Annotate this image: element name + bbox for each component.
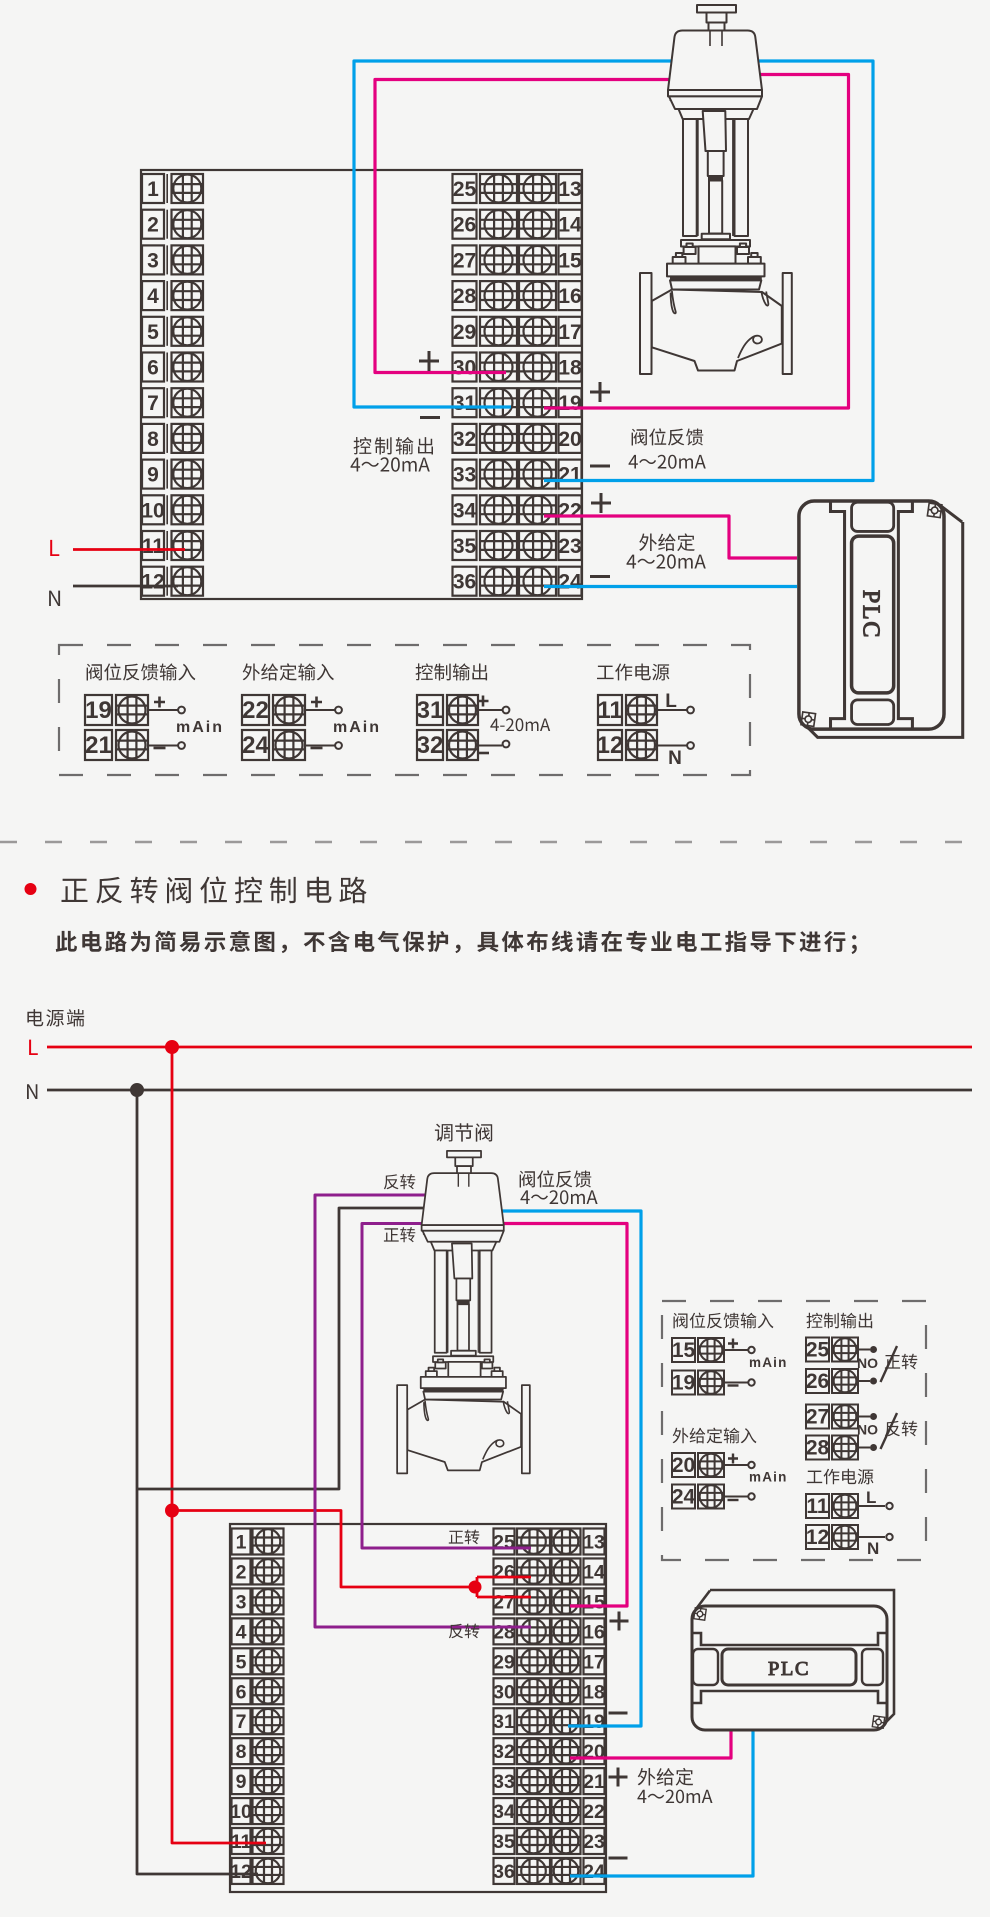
- svg-text:9: 9: [236, 1771, 247, 1793]
- svg-text:L: L: [866, 1488, 876, 1507]
- svg-text:32: 32: [417, 732, 444, 759]
- svg-text:21: 21: [583, 1771, 605, 1793]
- svg-text:mAin: mAin: [749, 1470, 788, 1485]
- svg-text:10: 10: [230, 1801, 252, 1823]
- svg-text:28: 28: [806, 1437, 830, 1460]
- svg-text:35: 35: [453, 535, 477, 558]
- svg-text:35: 35: [493, 1831, 515, 1853]
- svg-text:22: 22: [242, 697, 269, 724]
- svg-text:1: 1: [147, 178, 159, 201]
- svg-text:27: 27: [453, 249, 476, 272]
- svg-text:8: 8: [236, 1741, 247, 1763]
- svg-text:21: 21: [558, 464, 582, 487]
- svg-text:33: 33: [493, 1771, 515, 1793]
- svg-text:15: 15: [558, 249, 582, 272]
- svg-text:N: N: [668, 748, 682, 769]
- svg-text:19: 19: [672, 1372, 695, 1395]
- svg-text:36: 36: [453, 571, 476, 594]
- svg-text:18: 18: [558, 357, 582, 380]
- svg-text:14: 14: [558, 214, 582, 237]
- svg-text:24: 24: [672, 1486, 696, 1509]
- svg-text:13: 13: [558, 178, 581, 201]
- svg-text:26: 26: [453, 214, 476, 237]
- svg-text:29: 29: [493, 1651, 515, 1673]
- svg-text:23: 23: [583, 1831, 605, 1853]
- svg-text:2: 2: [236, 1561, 247, 1583]
- svg-text:11: 11: [806, 1495, 829, 1518]
- svg-text:mAin: mAin: [333, 719, 381, 736]
- svg-text:19: 19: [583, 1711, 605, 1733]
- svg-text:L: L: [665, 691, 677, 712]
- svg-text:12: 12: [230, 1861, 252, 1883]
- svg-text:24: 24: [558, 571, 582, 594]
- svg-text:NO: NO: [857, 1355, 878, 1371]
- svg-text:4: 4: [236, 1621, 247, 1643]
- svg-text:5: 5: [236, 1651, 247, 1673]
- svg-text:16: 16: [583, 1621, 605, 1643]
- svg-text:15: 15: [672, 1339, 696, 1362]
- svg-text:11: 11: [142, 535, 165, 558]
- svg-text:NO: NO: [857, 1422, 878, 1438]
- svg-text:34: 34: [453, 499, 477, 522]
- svg-text:26: 26: [806, 1370, 829, 1393]
- svg-text:1: 1: [236, 1532, 247, 1554]
- svg-text:31: 31: [453, 392, 477, 415]
- svg-text:5: 5: [147, 321, 159, 344]
- svg-text:28: 28: [453, 285, 477, 308]
- svg-text:20: 20: [558, 428, 581, 451]
- svg-text:mAin: mAin: [749, 1355, 788, 1370]
- svg-text:13: 13: [583, 1532, 605, 1554]
- svg-text:25: 25: [806, 1339, 830, 1362]
- svg-text:9: 9: [147, 464, 159, 487]
- svg-text:22: 22: [558, 499, 581, 522]
- svg-text:17: 17: [583, 1651, 605, 1673]
- svg-text:31: 31: [493, 1711, 515, 1733]
- svg-text:19: 19: [558, 392, 581, 415]
- svg-text:24: 24: [242, 732, 269, 759]
- svg-text:32: 32: [493, 1741, 515, 1763]
- svg-text:N: N: [867, 1539, 879, 1558]
- svg-text:12: 12: [597, 732, 624, 759]
- svg-text:30: 30: [453, 357, 476, 380]
- svg-text:23: 23: [558, 535, 581, 558]
- svg-text:24: 24: [583, 1861, 605, 1883]
- svg-text:7: 7: [236, 1711, 247, 1733]
- svg-text:20: 20: [583, 1741, 605, 1763]
- svg-text:8: 8: [147, 428, 159, 451]
- svg-text:20: 20: [672, 1454, 695, 1477]
- svg-text:14: 14: [583, 1561, 605, 1583]
- svg-text:26: 26: [493, 1561, 515, 1583]
- svg-text:27: 27: [806, 1406, 829, 1429]
- svg-text:36: 36: [493, 1861, 515, 1883]
- svg-text:17: 17: [558, 321, 581, 344]
- svg-text:10: 10: [141, 499, 164, 522]
- svg-text:15: 15: [583, 1591, 605, 1613]
- svg-text:2: 2: [147, 214, 159, 237]
- svg-text:32: 32: [453, 428, 476, 451]
- svg-text:29: 29: [453, 321, 476, 344]
- svg-text:22: 22: [583, 1801, 605, 1823]
- svg-text:12: 12: [141, 571, 164, 594]
- svg-text:3: 3: [147, 249, 159, 272]
- svg-text:6: 6: [147, 357, 159, 380]
- svg-text:16: 16: [558, 285, 581, 308]
- svg-text:6: 6: [236, 1681, 247, 1703]
- svg-text:25: 25: [453, 178, 477, 201]
- svg-text:30: 30: [493, 1681, 515, 1703]
- svg-text:11: 11: [597, 697, 622, 724]
- svg-text:27: 27: [493, 1591, 515, 1613]
- svg-text:28: 28: [493, 1621, 515, 1643]
- svg-text:25: 25: [493, 1532, 515, 1554]
- svg-text:33: 33: [453, 464, 476, 487]
- svg-text:4: 4: [147, 285, 159, 308]
- svg-text:18: 18: [583, 1681, 605, 1703]
- svg-text:21: 21: [85, 732, 112, 759]
- svg-text:12: 12: [806, 1526, 829, 1549]
- svg-text:mAin: mAin: [176, 719, 224, 736]
- svg-text:7: 7: [147, 392, 159, 415]
- svg-text:31: 31: [417, 697, 444, 724]
- svg-text:19: 19: [85, 697, 112, 724]
- svg-text:34: 34: [493, 1801, 515, 1823]
- svg-text:3: 3: [236, 1591, 247, 1613]
